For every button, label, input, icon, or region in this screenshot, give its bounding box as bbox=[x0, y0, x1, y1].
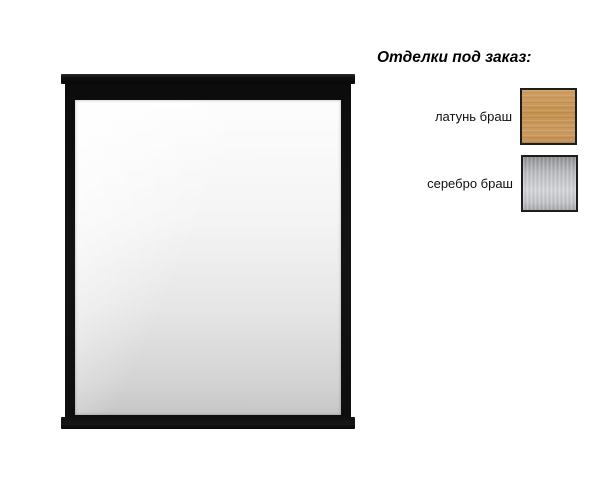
finish-option-silver: серебро браш bbox=[380, 154, 578, 212]
mirror-glass bbox=[75, 100, 341, 415]
brass-swatch bbox=[520, 88, 577, 145]
finishes-heading: Отделки под заказ: bbox=[377, 49, 531, 67]
silver-swatch bbox=[521, 155, 578, 212]
mirror-bottom-frame bbox=[61, 417, 355, 429]
finish-label-brass: латунь браш bbox=[435, 109, 512, 124]
mirror-top-cornice bbox=[61, 74, 355, 84]
finish-option-brass: латунь браш bbox=[380, 88, 577, 145]
mirror-product-photo bbox=[61, 74, 355, 429]
finish-label-silver: серебро браш bbox=[427, 176, 513, 191]
product-page: Отделки под заказ: латунь браш серебро б… bbox=[0, 0, 600, 498]
